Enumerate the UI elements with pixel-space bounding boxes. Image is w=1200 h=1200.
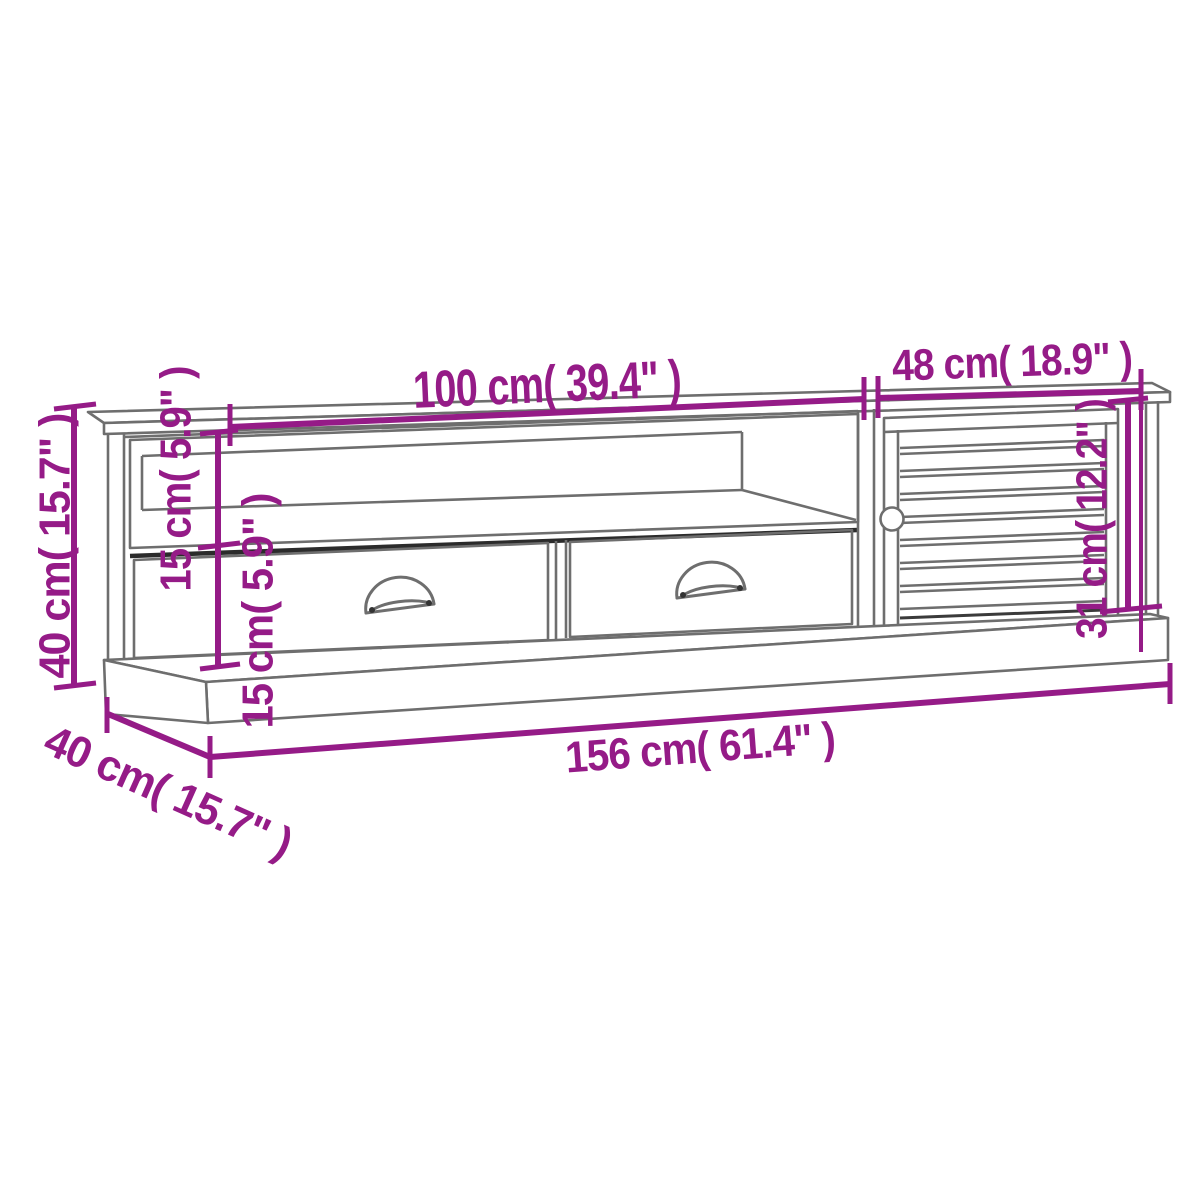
shelf-corner-edge bbox=[742, 490, 856, 520]
label-height-drawer: 15 cm( 5.9" ) bbox=[234, 494, 283, 729]
tv-stand-dimension-drawing: 100 cm( 39.4" ) 48 cm( 18.9" ) 40 cm( 15… bbox=[0, 0, 1200, 1200]
drawer-right-front bbox=[570, 530, 852, 637]
label-height-door: 31 cm( 12.2" ) bbox=[1068, 399, 1117, 639]
label-height-shelf: 15 cm( 5.9" ) bbox=[152, 367, 201, 592]
product-dimension-diagram: 100 cm( 39.4" ) 48 cm( 18.9" ) 40 cm( 15… bbox=[0, 0, 1200, 1200]
drawer-handle-left bbox=[366, 577, 434, 613]
drawer-handle-right bbox=[677, 562, 745, 598]
label-width-total: 156 cm( 61.4" ) bbox=[564, 713, 837, 782]
label-width-door: 48 cm( 18.9" ) bbox=[891, 333, 1133, 390]
shelf-back-edge bbox=[142, 490, 742, 510]
label-width-top: 100 cm( 39.4" ) bbox=[412, 350, 682, 420]
door-knob bbox=[881, 508, 904, 531]
label-height-total: 40 cm( 15.7" ) bbox=[31, 414, 80, 679]
